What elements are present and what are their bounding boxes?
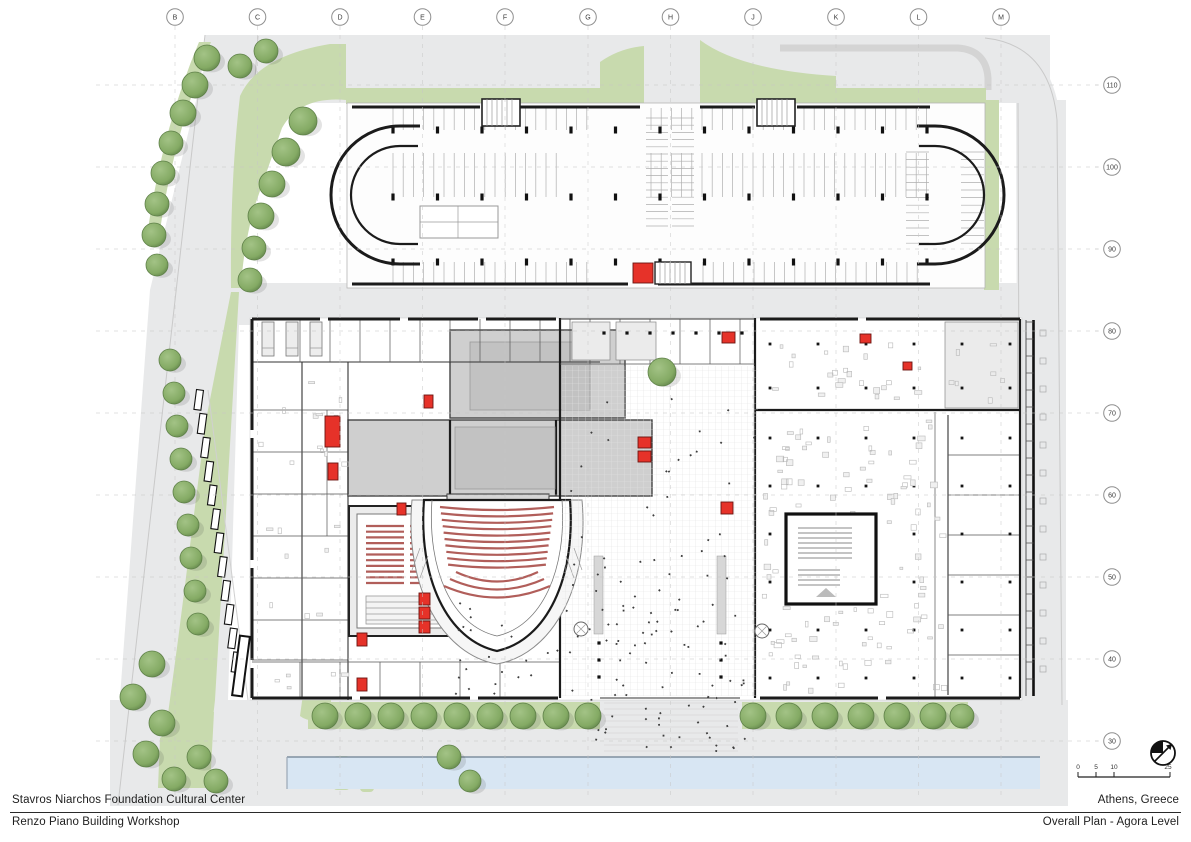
furniture-item [914, 617, 921, 622]
grid-column-label: K [834, 15, 839, 22]
furniture-item [894, 493, 898, 498]
structural-column [436, 127, 439, 134]
parking-stair-north-1 [482, 99, 520, 126]
structural-column [817, 485, 820, 488]
structural-column [961, 343, 964, 346]
colonnade-column [740, 331, 743, 334]
north-arrow-icon [1151, 741, 1175, 765]
furniture-item [287, 686, 291, 688]
grid-column-label: F [503, 15, 507, 22]
person-dot [668, 573, 670, 575]
tree [378, 703, 404, 729]
scale-label-10: 10 [1110, 764, 1118, 771]
tree [170, 100, 196, 126]
furniture-item [894, 397, 899, 400]
tree [543, 703, 569, 729]
tree [259, 171, 285, 197]
grid-row-label: 30 [1108, 739, 1116, 746]
colonnade-column [671, 331, 674, 334]
furniture-item [928, 637, 933, 639]
tree [248, 203, 274, 229]
furniture-item [988, 398, 992, 403]
structural-column [836, 194, 839, 201]
structural-column [881, 259, 884, 266]
structural-column [1009, 533, 1012, 536]
structural-column [961, 485, 964, 488]
person-dot [699, 673, 701, 675]
furniture-item [864, 354, 867, 360]
structural-column [480, 259, 483, 266]
grid-column-label: B [173, 15, 178, 22]
furniture-item [767, 575, 771, 580]
tree [254, 39, 278, 63]
person-dot [707, 575, 709, 577]
fire-stair-marker [424, 395, 433, 408]
structural-column [614, 127, 617, 134]
person-dot [589, 628, 591, 630]
tree [740, 703, 766, 729]
furniture-item [325, 548, 329, 552]
tree [151, 161, 175, 185]
structural-column [865, 629, 868, 632]
scale-bar: 0 5 10 25 [1076, 764, 1172, 777]
structural-column [865, 387, 868, 390]
fire-stair-marker [397, 503, 406, 515]
structural-column [961, 677, 964, 680]
furniture-item [787, 432, 793, 435]
person-dot [658, 717, 660, 719]
structural-column [658, 194, 661, 201]
person-dot [547, 652, 549, 654]
tree [345, 703, 371, 729]
furniture-item [309, 382, 315, 384]
structural-column [817, 437, 820, 440]
tree [884, 703, 910, 729]
fire-stair-marker [328, 463, 338, 480]
furniture-item [891, 498, 895, 504]
structural-column [658, 127, 661, 134]
furniture-item [786, 447, 790, 450]
furniture-item [900, 567, 903, 569]
tree [204, 769, 228, 793]
fire-stair-marker [419, 607, 430, 619]
structural-column [769, 677, 772, 680]
furniture-item [808, 688, 813, 693]
colonnade-column [648, 331, 651, 334]
furniture-item [935, 517, 940, 520]
title-block-row-1: Stavros Niarchos Foundation Cultural Cen… [12, 794, 1179, 806]
grid-column-label: C [255, 15, 260, 22]
structural-column [961, 437, 964, 440]
furniture-item [796, 435, 801, 440]
structural-column [913, 437, 916, 440]
person-dot [617, 640, 619, 642]
furniture-item [792, 638, 797, 641]
furniture-item [844, 473, 850, 477]
tree [133, 741, 159, 767]
person-dot [725, 655, 727, 657]
sheet: BCDEFGHJKLM11010090807060504030 0 5 10 2… [0, 0, 1191, 842]
structural-column [817, 343, 820, 346]
grid-row-label: 80 [1108, 329, 1116, 336]
grid-row-label: 60 [1108, 493, 1116, 500]
tree [648, 358, 676, 386]
furniture-item [827, 437, 830, 443]
tree [228, 54, 252, 78]
person-dot [701, 550, 703, 552]
furniture-item [325, 451, 328, 456]
person-dot [590, 699, 592, 701]
tree [145, 192, 169, 216]
structural-column [525, 259, 528, 266]
structural-column [1009, 581, 1012, 584]
furniture-item [830, 495, 835, 500]
fire-stair-marker [357, 678, 367, 691]
project-title: Stavros Niarchos Foundation Cultural Cen… [12, 794, 245, 806]
furniture-item [939, 625, 944, 629]
person-dot [683, 644, 685, 646]
person-dot [699, 430, 701, 432]
furniture-item [818, 393, 825, 396]
furniture-item [839, 611, 843, 613]
tree [437, 745, 461, 769]
structural-column [769, 533, 772, 536]
structural-column [769, 581, 772, 584]
grid-column-label: E [420, 15, 425, 22]
furniture-item [875, 394, 879, 399]
structural-column [913, 581, 916, 584]
furniture-item [334, 525, 340, 527]
structural-column [817, 387, 820, 390]
furniture-item [778, 470, 783, 473]
tree [575, 703, 601, 729]
furniture-item [782, 479, 788, 484]
furniture-item [784, 685, 787, 691]
furniture-item [885, 660, 891, 664]
furniture-item [843, 346, 848, 352]
tree [120, 684, 146, 710]
furniture-item [921, 586, 926, 589]
fire-stair-marker [419, 621, 430, 633]
person-dot [604, 567, 606, 569]
furniture-item [783, 607, 790, 610]
tree [776, 703, 802, 729]
person-dot [663, 735, 665, 737]
structural-column [703, 259, 706, 266]
tree [510, 703, 536, 729]
structural-column [614, 259, 617, 266]
grid-row-label: 90 [1108, 247, 1116, 254]
furniture-item [787, 682, 790, 685]
scale-label-0: 0 [1076, 764, 1080, 771]
fire-stair-marker [903, 362, 912, 370]
person-dot [728, 482, 730, 484]
tree [182, 72, 208, 98]
structural-column [769, 437, 772, 440]
fire-stair-marker [419, 593, 430, 605]
furniture-item [930, 482, 937, 488]
structural-column [1009, 387, 1012, 390]
structural-column [391, 194, 394, 201]
tree [920, 703, 946, 729]
scale-label-5: 5 [1094, 764, 1098, 771]
person-dot [634, 644, 636, 646]
person-dot [687, 646, 689, 648]
furniture-item [926, 420, 932, 422]
structural-column [480, 194, 483, 201]
canal [287, 757, 1040, 789]
structural-column [865, 437, 868, 440]
furniture-item [798, 480, 804, 486]
parking-garage [331, 99, 1004, 288]
furniture-item [780, 345, 783, 349]
canal-water [287, 757, 1040, 789]
tree [459, 770, 481, 792]
furniture-item [928, 425, 932, 429]
tree [477, 703, 503, 729]
furniture-item [823, 452, 829, 457]
grid-column-label: G [585, 15, 590, 22]
fire-stair-marker [860, 334, 871, 343]
tree [159, 131, 183, 155]
furniture-item [316, 414, 323, 416]
structural-column [747, 259, 750, 266]
person-dot [677, 609, 679, 611]
furniture-item [777, 456, 784, 462]
furniture-item [860, 467, 865, 470]
furniture-item [763, 494, 767, 500]
fire-stair-marker [722, 332, 735, 343]
structural-column [525, 194, 528, 201]
structural-column [769, 629, 772, 632]
person-dot [619, 659, 621, 661]
sheet-title: Overall Plan - Agora Level [1043, 816, 1179, 828]
person-dot [651, 633, 653, 635]
tree [194, 45, 220, 71]
grid-row-label: 50 [1108, 575, 1116, 582]
furniture-item [803, 665, 807, 668]
structural-column [792, 194, 795, 201]
furniture-item [802, 446, 806, 450]
structural-column [1009, 677, 1012, 680]
person-dot [623, 610, 625, 612]
structural-column [569, 127, 572, 134]
structural-column [881, 194, 884, 201]
spiral-stair-east [755, 624, 769, 638]
structural-column [569, 194, 572, 201]
tree [166, 415, 188, 437]
tree [162, 767, 186, 791]
fire-stair-marker [357, 633, 367, 646]
structural-column [961, 533, 964, 536]
furniture-item [915, 391, 922, 395]
person-dot [679, 736, 681, 738]
furniture-item [867, 479, 872, 482]
furniture-item [920, 577, 924, 583]
person-dot [715, 750, 717, 752]
structural-column [614, 194, 617, 201]
tree [142, 223, 166, 247]
tree [187, 613, 209, 635]
structural-column [436, 194, 439, 201]
person-dot [658, 724, 660, 726]
tree [163, 382, 185, 404]
furniture-item [990, 344, 997, 346]
tree [950, 704, 974, 728]
furniture-item [765, 540, 768, 545]
person-dot [606, 401, 608, 403]
project-location: Athens, Greece [1098, 794, 1179, 806]
tree [411, 703, 437, 729]
structural-column [703, 127, 706, 134]
furniture-item [901, 486, 906, 489]
tree [149, 710, 175, 736]
structural-column [525, 127, 528, 134]
furniture-item [317, 613, 323, 616]
structural-column [769, 343, 772, 346]
tree [272, 138, 300, 166]
structural-column [913, 343, 916, 346]
loading-dock [262, 322, 322, 356]
grid-row-label: 110 [1106, 83, 1117, 90]
colonnade-column [625, 331, 628, 334]
grid-column-label: L [917, 15, 921, 22]
fire-stair-marker [638, 451, 651, 462]
spiral-stair-west [574, 622, 588, 636]
lecture-room [786, 514, 876, 604]
structural-column [436, 259, 439, 266]
tree [159, 349, 181, 371]
furniture-item [927, 503, 930, 507]
structural-column [747, 127, 750, 134]
furniture-item [889, 451, 892, 455]
tree [312, 703, 338, 729]
title-block-divider [10, 812, 1181, 813]
furniture-item [266, 528, 272, 531]
tree [170, 448, 192, 470]
colonnade-column [602, 331, 605, 334]
furniture-item [881, 386, 886, 390]
structural-column [1009, 629, 1012, 632]
tree [238, 268, 262, 292]
structural-column [792, 259, 795, 266]
structural-column [913, 677, 916, 680]
furniture-item [824, 617, 829, 622]
furniture-item [874, 388, 880, 394]
parking-stair-north-2 [757, 99, 795, 126]
tree [812, 703, 838, 729]
structural-column [817, 629, 820, 632]
person-dot [572, 584, 574, 586]
furniture-item [285, 554, 288, 558]
structural-column [569, 259, 572, 266]
person-dot [488, 656, 490, 658]
colonnade-column [694, 331, 697, 334]
grid-column-label: J [751, 15, 755, 22]
fire-stair-marker [721, 502, 733, 514]
furniture-item [911, 480, 915, 486]
site-plan-drawing: BCDEFGHJKLM11010090807060504030 0 5 10 2… [0, 0, 1191, 842]
structural-column [836, 259, 839, 266]
structural-column [961, 387, 964, 390]
tree [184, 580, 206, 602]
tree [289, 107, 317, 135]
furniture-item [286, 674, 290, 677]
structural-column [881, 127, 884, 134]
structural-column [961, 581, 964, 584]
grid-row-label: 100 [1106, 165, 1118, 172]
structural-column [1009, 437, 1012, 440]
person-dot [494, 683, 496, 685]
furniture-item [764, 564, 771, 569]
grid-row-label: 40 [1108, 657, 1116, 664]
person-dot [615, 643, 617, 645]
structural-column [480, 127, 483, 134]
parking-elevator-core [633, 262, 691, 284]
structural-column [865, 485, 868, 488]
tree [848, 703, 874, 729]
agora-paving [562, 366, 758, 696]
structural-column [703, 194, 706, 201]
structural-column [769, 387, 772, 390]
structural-column [1009, 485, 1012, 488]
colonnade-column [717, 331, 720, 334]
colonnade-column [719, 641, 722, 644]
fire-stair-marker [638, 437, 651, 448]
person-dot [734, 615, 736, 617]
structural-column [817, 677, 820, 680]
grid-column-label: D [337, 15, 342, 22]
structural-column [913, 387, 916, 390]
tree [146, 254, 168, 276]
structural-column [792, 127, 795, 134]
furniture-item [810, 636, 817, 641]
structural-column [913, 629, 916, 632]
person-dot [595, 590, 597, 592]
colonnade-column [597, 675, 600, 678]
tree [177, 514, 199, 536]
furniture-item [916, 443, 922, 449]
person-dot [605, 728, 607, 730]
structural-column [747, 194, 750, 201]
colonnade-column [719, 675, 722, 678]
structural-column [913, 533, 916, 536]
tree [187, 745, 211, 769]
furniture-item [862, 642, 866, 646]
structural-column [836, 127, 839, 134]
person-dot [719, 533, 721, 535]
tree [444, 703, 470, 729]
grid-column-label: M [998, 15, 1004, 22]
structural-column [865, 677, 868, 680]
person-dot [743, 682, 745, 684]
fire-stair-marker [325, 416, 340, 447]
structural-column [1009, 343, 1012, 346]
colonnade-column [597, 641, 600, 644]
structural-column [961, 629, 964, 632]
furniture-item [341, 673, 348, 677]
tree [173, 481, 195, 503]
structural-column [925, 127, 928, 134]
person-dot [743, 680, 745, 682]
furniture-item [836, 383, 843, 388]
furniture-item [955, 381, 958, 386]
agora-plaza [562, 331, 769, 751]
title-block-row-2: Renzo Piano Building Workshop Overall Pl… [12, 816, 1179, 828]
tree [180, 547, 202, 569]
architect-name: Renzo Piano Building Workshop [12, 816, 180, 828]
grid-column-label: H [668, 15, 673, 22]
